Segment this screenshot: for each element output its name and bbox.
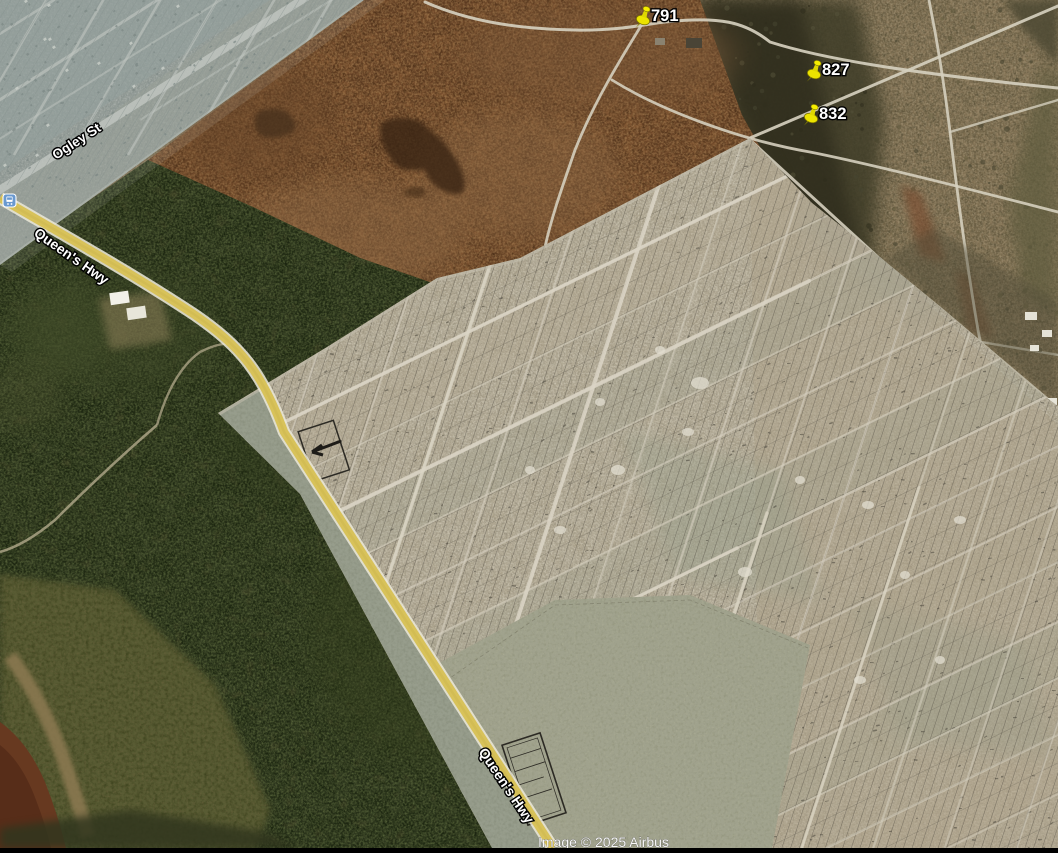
svg-text:827: 827 [822, 61, 850, 79]
svg-text:791: 791 [651, 7, 679, 25]
svg-text:832: 832 [819, 105, 847, 123]
svg-text:Image © 2025 Airbus: Image © 2025 Airbus [538, 834, 669, 848]
